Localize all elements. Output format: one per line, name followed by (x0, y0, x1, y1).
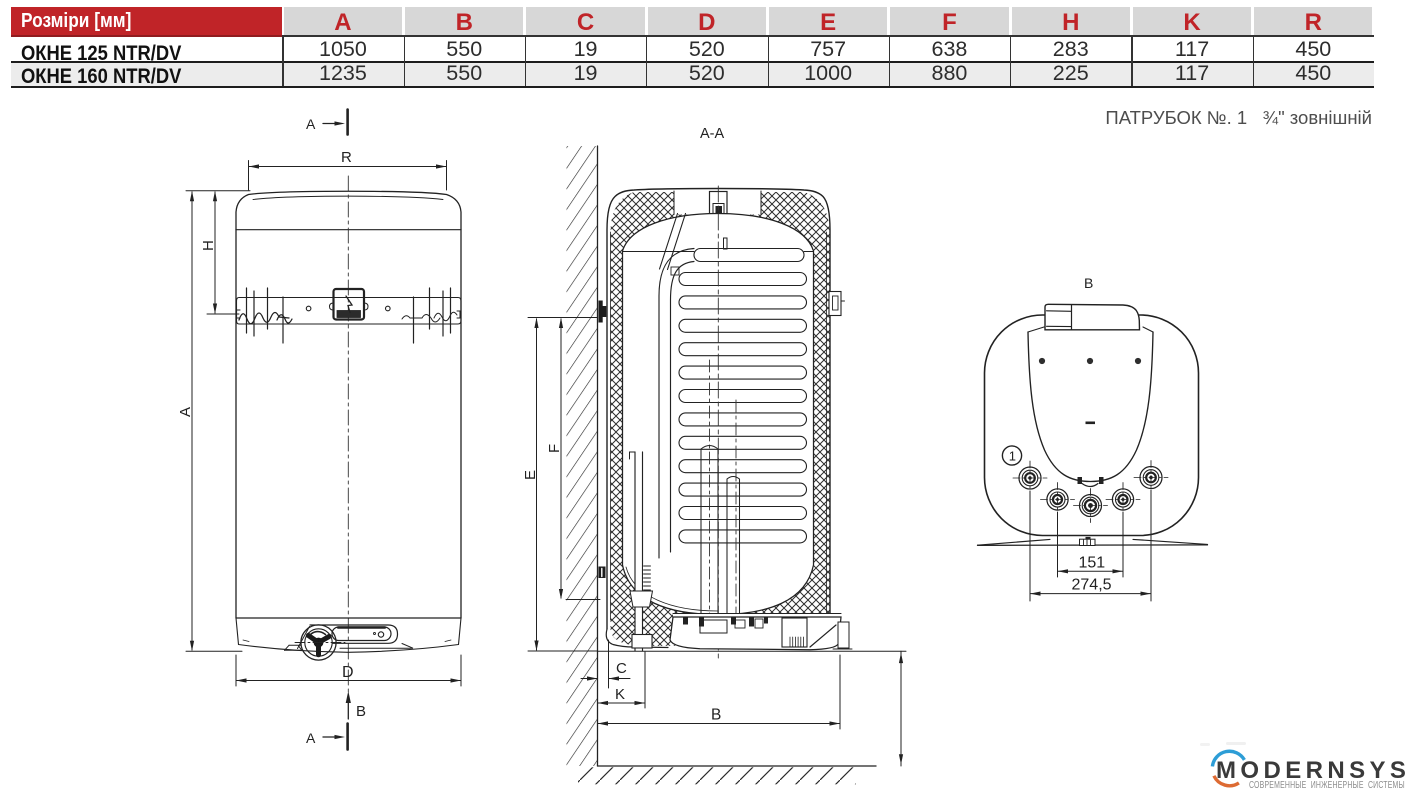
svg-text:B: B (1084, 275, 1093, 291)
svg-text:R: R (341, 149, 352, 166)
svg-text:B: B (356, 703, 366, 720)
svg-text:F: F (546, 444, 563, 453)
svg-text:274,5: 274,5 (1072, 577, 1112, 594)
svg-text:A-A: A-A (700, 126, 725, 142)
svg-text:A: A (306, 116, 316, 132)
svg-text:D: D (342, 664, 354, 681)
svg-text:A: A (306, 730, 316, 746)
svg-text:151: 151 (1079, 555, 1106, 572)
svg-text:H: H (200, 240, 217, 251)
svg-text:B: B (711, 707, 721, 724)
svg-text:C: C (616, 660, 627, 677)
svg-text:E: E (522, 470, 539, 480)
svg-text:K: K (615, 686, 625, 703)
svg-text:A: A (177, 407, 194, 417)
svg-text:1: 1 (1009, 449, 1016, 464)
